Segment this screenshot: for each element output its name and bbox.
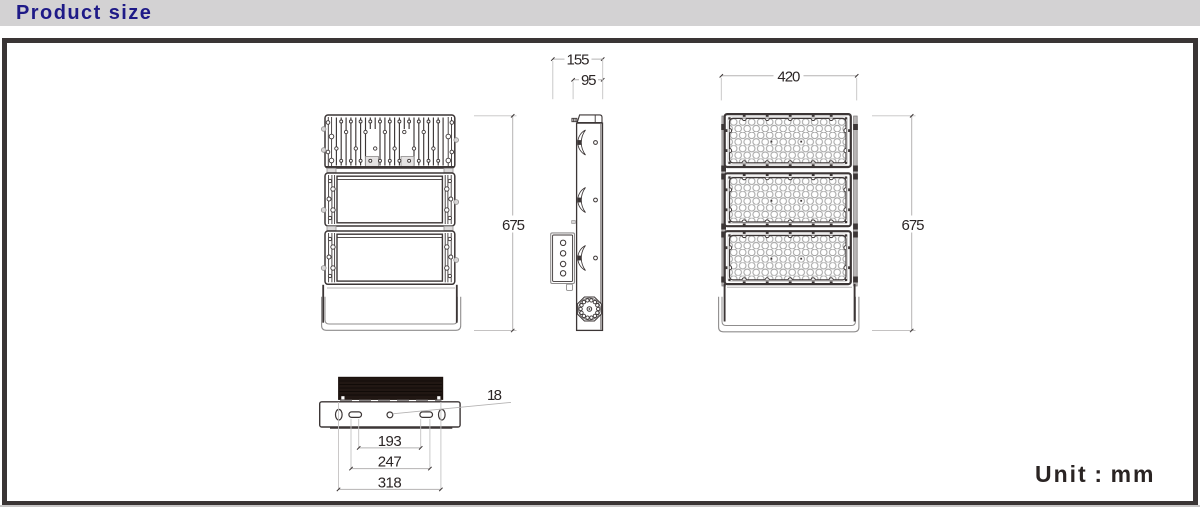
svg-text:193: 193 xyxy=(378,433,402,450)
svg-text:675: 675 xyxy=(502,217,525,234)
svg-text:420: 420 xyxy=(777,68,800,85)
svg-text:318: 318 xyxy=(378,474,402,491)
svg-text:18: 18 xyxy=(487,387,502,404)
svg-text:95: 95 xyxy=(581,72,597,89)
svg-text:675: 675 xyxy=(902,217,925,234)
svg-text:247: 247 xyxy=(378,454,402,471)
svg-text:155: 155 xyxy=(567,51,590,68)
